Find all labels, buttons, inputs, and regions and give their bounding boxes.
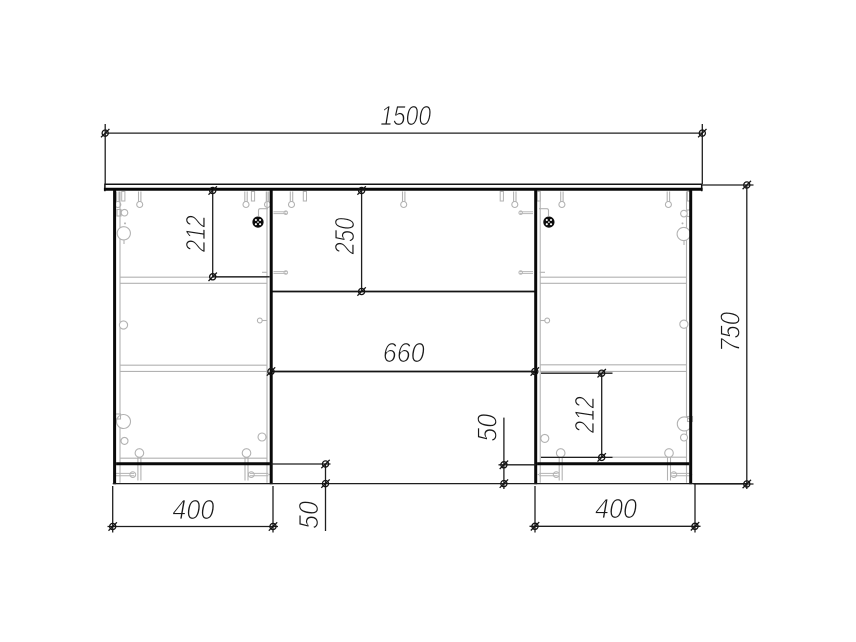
svg-text:400: 400 xyxy=(595,493,638,524)
svg-text:750: 750 xyxy=(714,311,745,352)
svg-text:50: 50 xyxy=(293,500,324,529)
svg-text:250: 250 xyxy=(329,217,360,255)
svg-text:660: 660 xyxy=(383,337,426,368)
svg-text:212: 212 xyxy=(180,215,211,253)
svg-text:400: 400 xyxy=(172,494,215,525)
svg-text:50: 50 xyxy=(471,413,502,442)
svg-text:1500: 1500 xyxy=(380,100,432,131)
svg-text:212: 212 xyxy=(569,396,600,434)
